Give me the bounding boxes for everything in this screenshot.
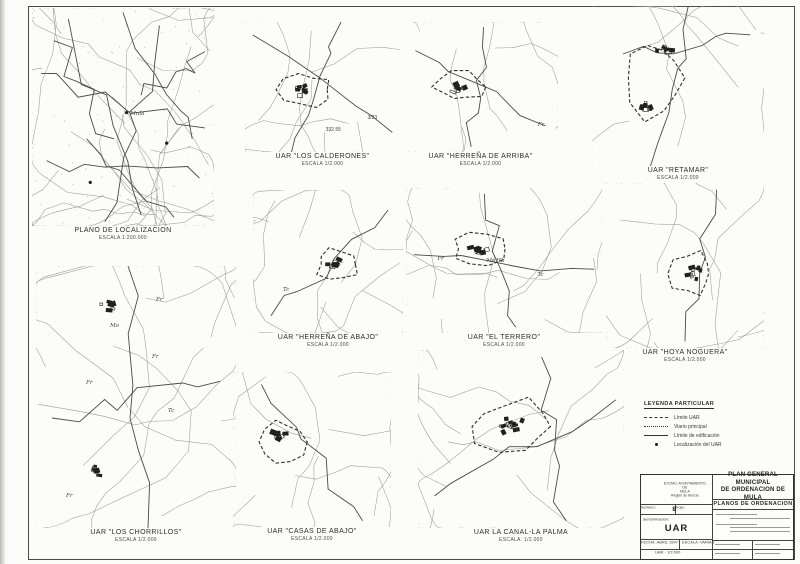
legend-item-label: Localización del UAR [674,442,722,448]
map-title: UAR "EL TERRERO" [406,334,602,341]
map-annotation: 332.55 [326,127,341,133]
map-caption: UAR "HERREÑA DE ABAJO" ESCALA 1/2.000 [253,334,403,355]
map-drawing-localizacion [32,8,214,226]
denomination-label: denominación: [643,517,669,522]
map-drawing-retamar [592,6,764,166]
map-caption: PLANO DE LOCALIZACION ESCALA 1:200.000 [32,227,214,248]
legend-item: Localización del UAR [644,440,764,449]
org-line: MULA [664,490,706,492]
scale-value: ESCALA: VARIAS [682,540,714,545]
map-drawing-casas-de-abajo [233,372,391,527]
title-block: EXCMO. AYUNTAMIENTO DE MULA Región de Mu… [640,474,794,560]
map-annotation: Mo [110,323,119,329]
legend-item: Límite de edificación [644,431,764,440]
map-drawing-hoya-noguera [606,183,764,348]
map-drawing-herrena-de-arriba [403,22,558,152]
legend-item-label: Límite UAR [674,415,700,421]
map-scale: ESCALA 1/2.000 [403,161,558,167]
map-title: UAR "RETAMAR" [592,167,764,174]
map-title: UAR "LOS CHORRILLOS" [36,529,236,536]
fine-print-line [716,524,757,525]
map-title: UAR "CASAS DE ABAJO" [233,528,391,535]
signature-grid [713,541,793,559]
sheet-number-row: número: 8 hoja: [641,505,712,515]
map-title: UAR "HERREÑA DE ARRIBA" [403,153,558,160]
map-annotation: Fr [156,297,162,303]
map-annotation: Fr [86,380,92,386]
organization-cell: EXCMO. AYUNTAMIENTO DE MULA Región de Mu… [641,475,712,505]
map-scale: ESCALA 1/2.000 [606,357,764,363]
fine-print-line [730,527,790,528]
plan-title: DE ORDENACION DE MULA [721,487,785,501]
fine-print-line [730,518,790,519]
plan-title: PLAN GENERAL MUNICIPAL [728,472,778,486]
map-caption: UAR "LOS CHORRILLOS" ESCALA 1/2.000 [36,529,236,550]
hoja-label: hoja: [676,505,685,510]
map-caption: UAR "HOYA NOGUERA" ESCALA 1/2.000 [606,349,764,370]
dotted-line-symbol [644,426,668,427]
map-title: UAR "HOYA NOGUERA" [606,349,764,356]
org-line: EXCMO. AYUNTAMIENTO [664,482,706,484]
title-block-left-column: EXCMO. AYUNTAMIENTO DE MULA Región de Mu… [641,475,713,559]
map-title: PLANO DE LOCALIZACION [32,227,214,234]
map-drawing-la-canal-la-palma [418,350,624,528]
map-title: UAR LA CANAL-LA PALMA [418,529,624,536]
hoja-cell: hoja: [676,505,712,514]
legend-item-label: Viario principal [674,424,707,430]
plan-title-cell: PLAN GENERAL MUNICIPAL DE ORDENACION DE … [713,475,793,500]
denomination-cell: denominación: UAR [641,515,712,540]
map-scale: ESCALA 1/2.000 [245,161,400,167]
scale-detail-value: UAR - 1/2.000 [655,550,680,555]
legend-item-label: Límite de edificación [674,433,720,439]
map-annotation: Tc [283,287,289,293]
map-annotation: Fr [437,256,443,262]
date-cell: FECHA: ABRIL 1997 [641,540,680,549]
map-title: UAR "LOS CALDERONES" [245,153,400,160]
map-scale: ESCALA 1/2.000 [36,537,236,543]
map-panel-la-canal-la-palma: UAR LA CANAL-LA PALMA ESCALA: 1/2.000 [418,350,624,550]
map-annotation: Hb [496,258,504,264]
map-annotation: Fr [152,354,158,360]
series-cell: PLANOS DE ORDENACION [713,500,793,510]
date-value: FECHA: ABRIL 1997 [641,540,678,545]
map-caption: UAR "CASAS DE ABAJO" ESCALA 1/2.000 [233,528,391,549]
map-annotation: Fr [66,493,72,499]
map-panel-retamar: UAR "RETAMAR" ESCALA 1/2.000 [592,6,764,188]
sheet-number-cell: número: 8 [641,505,676,514]
location-dot-symbol [644,443,668,446]
fine-print-line [716,514,757,515]
map-scale: ESCALA 1/2.000 [406,342,602,348]
map-annotation: Mula [130,111,144,117]
plan-sheet: Mula PLANO DE LOCALIZACION ESCALA 1:200.… [0,0,800,564]
grid-cell [753,541,793,550]
map-panel-hoya-noguera: UAR "HOYA NOGUERA" ESCALA 1/2.000 [606,183,764,370]
map-annotation: Fr [538,122,544,128]
fine-print-line [730,531,790,532]
map-panel-herrena-de-abajo: Tc UAR "HERREÑA DE ABAJO" ESCALA 1/2.000 [253,190,403,355]
number-label: número: [641,505,656,510]
solid-line-symbol [644,435,668,436]
description-cell [713,510,793,541]
legend: LEYENDA PARTICULAR Límite UAR Viario pri… [644,392,764,449]
map-scale: ESCALA 1/2.000 [592,175,764,181]
dashed-line-symbol [644,417,668,418]
map-drawing-los-chorrillos [36,266,236,528]
org-line: DE [664,486,706,488]
map-panel-herrena-de-arriba: Fr UAR "HERREÑA DE ARRIBA" ESCALA 1/2.00… [403,22,558,174]
map-panel-casas-de-abajo: UAR "CASAS DE ABAJO" ESCALA 1/2.000 [233,372,391,549]
grid-cell [713,541,753,550]
map-panel-los-chorrillos: Fr Mo Fr Fr Tc Fr UAR "LOS CHORRILLOS" E… [36,266,236,550]
map-title: UAR "HERREÑA DE ABAJO" [253,334,403,341]
legend-item: Límite UAR [644,413,764,422]
map-annotation: Tc [537,272,543,278]
map-caption: UAR LA CANAL-LA PALMA ESCALA: 1/2.000 [418,529,624,550]
map-annotation: Tc [168,408,174,414]
map-scale: ESCALA 1/2.000 [253,342,403,348]
map-annotation: Mo [486,258,495,264]
org-line: Región de Murcia [664,494,706,496]
grid-cell [753,550,793,559]
map-caption: UAR "HERREÑA DE ARRIBA" ESCALA 1/2.000 [403,153,558,174]
map-scale: ESCALA 1/2.000 [233,536,391,542]
map-panel-los-calderones: 332.55 3/23 UAR "LOS CALDERONES" ESCALA … [245,22,400,174]
grid-cell [713,550,753,559]
scale-detail-row: UAR - 1/2.000 [641,550,712,559]
date-scale-row: FECHA: ABRIL 1997 ESCALA: VARIAS [641,540,712,550]
series-title: PLANOS DE ORDENACION [713,501,792,507]
map-caption: UAR "LOS CALDERONES" ESCALA 1/2.000 [245,153,400,174]
map-panel-localizacion: Mula PLANO DE LOCALIZACION ESCALA 1:200.… [32,8,214,248]
scan-edge [0,0,6,564]
map-drawing-herrena-de-abajo [253,190,403,333]
title-block-right-column: PLAN GENERAL MUNICIPAL DE ORDENACION DE … [713,475,793,559]
map-panel-el-terrero: Fr Mo Hb Tc UAR "EL TERRERO" ESCALA 1/2.… [406,188,602,355]
map-annotation: 3/23 [367,115,377,121]
map-scale: ESCALA 1:200.000 [32,235,214,241]
denomination-value: UAR [641,523,712,534]
legend-title: LEYENDA PARTICULAR [644,401,714,409]
map-drawing-los-calderones [245,22,400,152]
map-scale: ESCALA: 1/2.000 [418,537,624,543]
legend-item: Viario principal [644,422,764,431]
